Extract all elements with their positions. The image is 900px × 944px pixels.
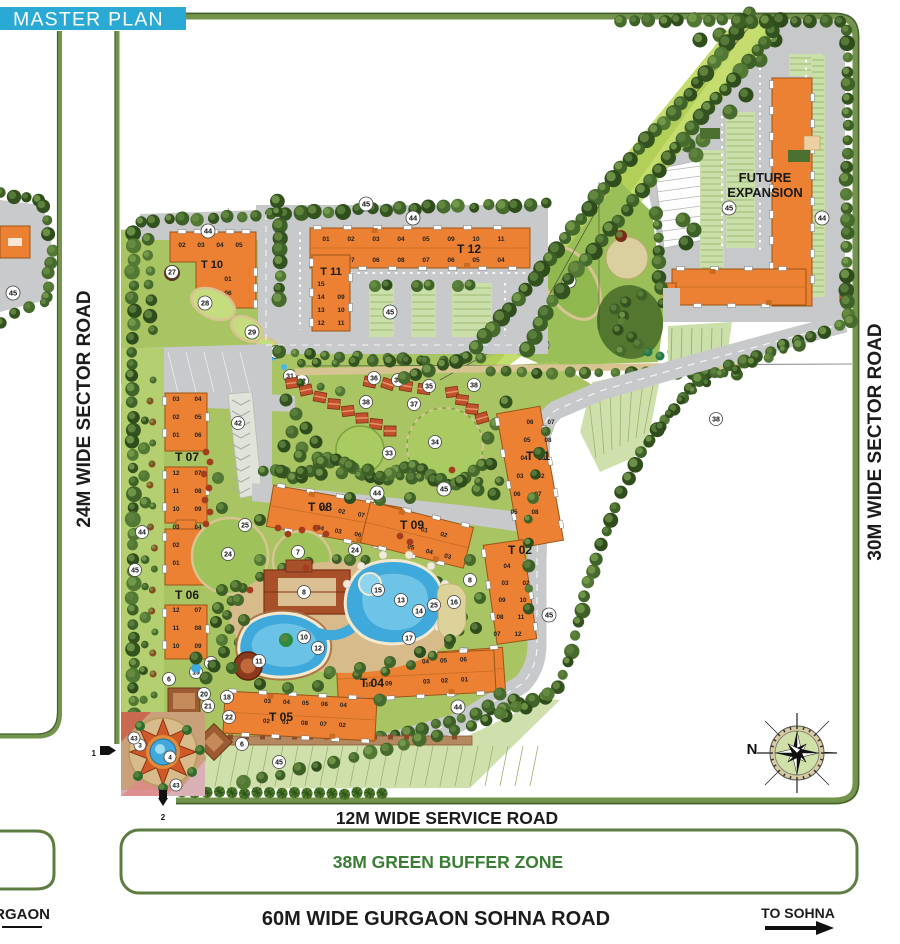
svg-text:05: 05 bbox=[302, 700, 310, 707]
svg-text:1: 1 bbox=[92, 749, 97, 758]
svg-text:10: 10 bbox=[172, 506, 180, 513]
svg-text:05: 05 bbox=[194, 414, 202, 421]
svg-text:07: 07 bbox=[320, 721, 328, 728]
svg-text:11: 11 bbox=[173, 488, 180, 495]
svg-text:29: 29 bbox=[248, 328, 256, 337]
svg-text:09: 09 bbox=[498, 597, 506, 604]
svg-text:07: 07 bbox=[422, 257, 430, 264]
svg-text:02: 02 bbox=[347, 236, 355, 243]
svg-text:11: 11 bbox=[255, 659, 263, 666]
svg-text:2: 2 bbox=[161, 813, 166, 822]
svg-text:45: 45 bbox=[545, 611, 553, 620]
svg-text:44: 44 bbox=[204, 227, 213, 236]
svg-text:24: 24 bbox=[351, 548, 359, 555]
svg-text:04: 04 bbox=[194, 396, 202, 403]
svg-text:18: 18 bbox=[223, 695, 231, 702]
svg-text:27: 27 bbox=[168, 270, 176, 277]
svg-text:03: 03 bbox=[501, 580, 509, 587]
svg-text:38: 38 bbox=[362, 400, 370, 407]
svg-text:8: 8 bbox=[468, 578, 472, 585]
svg-text:16: 16 bbox=[450, 600, 458, 607]
svg-text:01: 01 bbox=[322, 236, 330, 243]
svg-text:33: 33 bbox=[385, 451, 393, 458]
svg-text:03: 03 bbox=[423, 678, 431, 685]
svg-text:45: 45 bbox=[440, 485, 448, 494]
svg-text:38M GREEN BUFFER ZONE: 38M GREEN BUFFER ZONE bbox=[333, 852, 563, 872]
svg-text:04: 04 bbox=[497, 257, 505, 264]
svg-text:URGAON: URGAON bbox=[0, 906, 50, 923]
svg-text:06: 06 bbox=[513, 491, 521, 498]
svg-text:02: 02 bbox=[178, 242, 186, 249]
svg-text:10: 10 bbox=[172, 643, 180, 650]
svg-text:05: 05 bbox=[440, 657, 448, 664]
svg-text:06: 06 bbox=[447, 257, 455, 264]
svg-text:03: 03 bbox=[372, 236, 380, 243]
svg-text:T 11: T 11 bbox=[320, 266, 341, 278]
svg-text:08: 08 bbox=[301, 720, 309, 727]
svg-text:05: 05 bbox=[472, 257, 480, 264]
svg-text:N: N bbox=[747, 741, 758, 758]
svg-text:06: 06 bbox=[194, 432, 202, 439]
svg-text:15: 15 bbox=[374, 588, 382, 595]
svg-text:05: 05 bbox=[235, 242, 243, 249]
svg-text:08: 08 bbox=[194, 488, 202, 495]
svg-text:12: 12 bbox=[172, 607, 180, 614]
svg-text:44: 44 bbox=[409, 214, 418, 223]
svg-text:10: 10 bbox=[337, 307, 345, 314]
svg-text:12: 12 bbox=[514, 631, 522, 638]
svg-text:04: 04 bbox=[283, 699, 291, 706]
svg-text:60M WIDE GURGAON SOHNA ROAD: 60M WIDE GURGAON SOHNA ROAD bbox=[262, 908, 610, 930]
svg-text:10: 10 bbox=[472, 236, 480, 243]
svg-text:03: 03 bbox=[197, 242, 205, 249]
svg-text:06: 06 bbox=[460, 656, 468, 663]
svg-text:14: 14 bbox=[415, 609, 423, 616]
svg-text:01: 01 bbox=[224, 276, 232, 283]
svg-text:03: 03 bbox=[516, 473, 524, 480]
svg-text:06: 06 bbox=[321, 701, 329, 708]
svg-text:03: 03 bbox=[172, 396, 180, 403]
svg-text:09: 09 bbox=[194, 506, 202, 513]
svg-text:01: 01 bbox=[282, 719, 290, 726]
svg-text:34: 34 bbox=[431, 440, 439, 447]
svg-text:10: 10 bbox=[519, 597, 527, 604]
svg-text:09: 09 bbox=[447, 236, 455, 243]
svg-text:FUTURE: FUTURE bbox=[739, 170, 792, 185]
svg-text:6: 6 bbox=[240, 742, 244, 749]
svg-text:01: 01 bbox=[172, 432, 180, 439]
svg-text:37: 37 bbox=[410, 402, 418, 409]
svg-text:3: 3 bbox=[138, 742, 142, 749]
svg-text:43: 43 bbox=[172, 782, 180, 789]
svg-text:12M WIDE SERVICE ROAD: 12M WIDE SERVICE ROAD bbox=[336, 808, 558, 828]
svg-text:10: 10 bbox=[365, 681, 373, 688]
svg-text:EXPANSION: EXPANSION bbox=[727, 185, 803, 200]
svg-text:12: 12 bbox=[172, 470, 180, 477]
svg-text:06: 06 bbox=[526, 419, 534, 426]
svg-text:T 12: T 12 bbox=[457, 242, 481, 256]
svg-text:11: 11 bbox=[498, 236, 505, 243]
svg-text:08: 08 bbox=[531, 509, 539, 516]
svg-text:17: 17 bbox=[405, 636, 413, 643]
svg-text:13: 13 bbox=[397, 598, 405, 605]
svg-text:11: 11 bbox=[173, 625, 180, 632]
svg-text:08: 08 bbox=[397, 257, 405, 264]
svg-text:T 07: T 07 bbox=[175, 450, 199, 464]
svg-text:05: 05 bbox=[422, 236, 430, 243]
svg-text:45: 45 bbox=[386, 308, 394, 317]
svg-text:04: 04 bbox=[397, 236, 405, 243]
svg-text:01: 01 bbox=[461, 676, 469, 683]
svg-text:28: 28 bbox=[201, 299, 209, 308]
svg-text:7: 7 bbox=[296, 550, 300, 557]
svg-text:09: 09 bbox=[194, 643, 202, 650]
svg-text:35: 35 bbox=[425, 384, 433, 391]
svg-text:30M WIDE SECTOR ROAD: 30M WIDE SECTOR ROAD bbox=[865, 323, 886, 560]
svg-text:25: 25 bbox=[430, 603, 438, 610]
svg-text:38: 38 bbox=[470, 383, 478, 390]
svg-text:07: 07 bbox=[194, 607, 202, 614]
svg-text:02: 02 bbox=[172, 414, 180, 421]
svg-text:02: 02 bbox=[339, 722, 347, 729]
svg-text:09: 09 bbox=[337, 294, 345, 301]
svg-text:03: 03 bbox=[264, 698, 272, 705]
svg-text:MASTER PLAN: MASTER PLAN bbox=[13, 9, 164, 31]
svg-text:44: 44 bbox=[373, 489, 382, 498]
svg-text:08: 08 bbox=[194, 625, 202, 632]
svg-text:11: 11 bbox=[338, 320, 345, 327]
svg-text:44: 44 bbox=[818, 214, 827, 223]
svg-text:TO SOHNA: TO SOHNA bbox=[761, 905, 835, 921]
svg-text:14: 14 bbox=[317, 294, 325, 301]
svg-text:06: 06 bbox=[372, 257, 380, 264]
svg-text:44: 44 bbox=[138, 530, 146, 537]
svg-text:04: 04 bbox=[340, 702, 348, 709]
svg-text:4: 4 bbox=[168, 754, 172, 761]
svg-text:45: 45 bbox=[725, 204, 733, 213]
svg-text:07: 07 bbox=[547, 419, 555, 426]
svg-text:45: 45 bbox=[275, 760, 283, 767]
svg-text:T 06: T 06 bbox=[175, 588, 199, 602]
svg-text:45: 45 bbox=[9, 289, 17, 298]
svg-text:12: 12 bbox=[317, 320, 325, 327]
svg-text:02: 02 bbox=[441, 677, 449, 684]
svg-text:05: 05 bbox=[510, 509, 518, 516]
svg-text:12: 12 bbox=[314, 646, 322, 653]
svg-text:42: 42 bbox=[234, 421, 242, 428]
svg-text:02: 02 bbox=[263, 718, 271, 725]
svg-text:38: 38 bbox=[712, 417, 720, 424]
svg-text:04: 04 bbox=[216, 242, 224, 249]
svg-text:T 10: T 10 bbox=[201, 259, 223, 271]
svg-text:11: 11 bbox=[518, 614, 525, 621]
svg-text:25: 25 bbox=[241, 523, 249, 530]
svg-text:20: 20 bbox=[200, 692, 208, 699]
svg-text:36: 36 bbox=[370, 376, 378, 383]
svg-text:24: 24 bbox=[224, 552, 232, 559]
svg-text:04: 04 bbox=[422, 658, 430, 665]
svg-text:22: 22 bbox=[225, 715, 233, 722]
svg-text:04: 04 bbox=[520, 455, 528, 462]
svg-text:24M WIDE SECTOR ROAD: 24M WIDE SECTOR ROAD bbox=[74, 290, 95, 527]
svg-text:6: 6 bbox=[167, 677, 171, 684]
svg-text:43: 43 bbox=[130, 735, 138, 742]
svg-text:45: 45 bbox=[131, 568, 139, 575]
svg-text:13: 13 bbox=[317, 307, 325, 314]
svg-text:01: 01 bbox=[172, 560, 180, 567]
svg-text:8: 8 bbox=[302, 590, 306, 597]
svg-text:07: 07 bbox=[493, 631, 501, 638]
svg-text:15: 15 bbox=[317, 281, 325, 288]
svg-text:04: 04 bbox=[503, 563, 511, 570]
svg-text:03: 03 bbox=[172, 524, 180, 531]
svg-text:05: 05 bbox=[523, 437, 531, 444]
svg-text:21: 21 bbox=[204, 704, 212, 711]
svg-text:45: 45 bbox=[362, 200, 370, 209]
svg-text:09: 09 bbox=[385, 680, 393, 687]
svg-text:10: 10 bbox=[300, 635, 308, 642]
svg-text:08: 08 bbox=[496, 614, 504, 621]
svg-text:44: 44 bbox=[454, 703, 463, 712]
svg-text:08: 08 bbox=[544, 437, 552, 444]
svg-text:02: 02 bbox=[172, 542, 180, 549]
